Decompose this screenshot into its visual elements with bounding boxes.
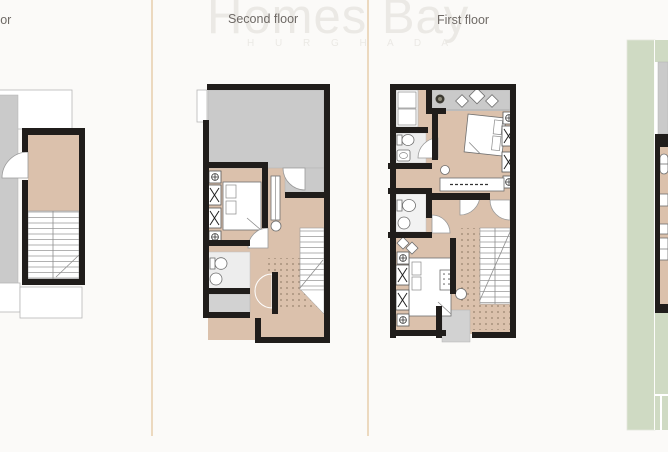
sink-2 — [398, 217, 410, 229]
panel-divider-right — [367, 0, 369, 436]
toilet-2 — [397, 200, 416, 212]
panel-divider-left — [151, 0, 153, 436]
ground-floor-plan-partial — [625, 38, 668, 434]
room-floor — [28, 134, 79, 211]
first-floor-label: First floor — [437, 13, 489, 27]
wardrobe — [271, 176, 281, 231]
second-floor-plan — [195, 82, 335, 348]
floorplan-sheet: Homes Bay H U R G H A D A floor Second f… — [0, 0, 668, 452]
brand-watermark-subtitle: H U R G H A D A — [247, 38, 457, 49]
first-floor-plan — [388, 82, 522, 344]
hall-fixture — [456, 289, 467, 300]
toilet-1 — [397, 135, 414, 146]
bed-1 — [464, 114, 506, 156]
sink-1 — [397, 150, 410, 161]
second-floor-label: Second floor — [228, 12, 298, 26]
roof-floor-plan-partial — [0, 85, 90, 320]
balcony — [432, 88, 510, 110]
lamp — [441, 166, 450, 175]
utility-room-floor — [208, 294, 250, 314]
closet — [396, 90, 418, 127]
terrace — [655, 62, 668, 134]
bed — [223, 182, 261, 230]
sink — [210, 273, 222, 285]
toilet — [210, 258, 227, 270]
left-floor-label: floor — [0, 13, 11, 27]
stairs — [28, 211, 79, 279]
